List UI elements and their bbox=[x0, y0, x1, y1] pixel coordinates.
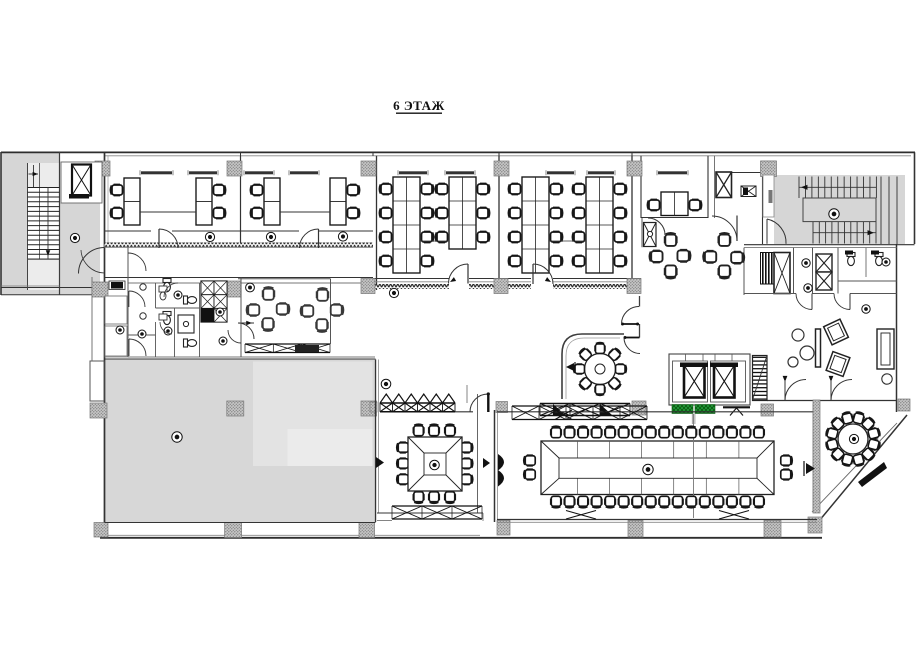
svg-text:6 ЭТАЖ: 6 ЭТАЖ bbox=[393, 98, 445, 113]
